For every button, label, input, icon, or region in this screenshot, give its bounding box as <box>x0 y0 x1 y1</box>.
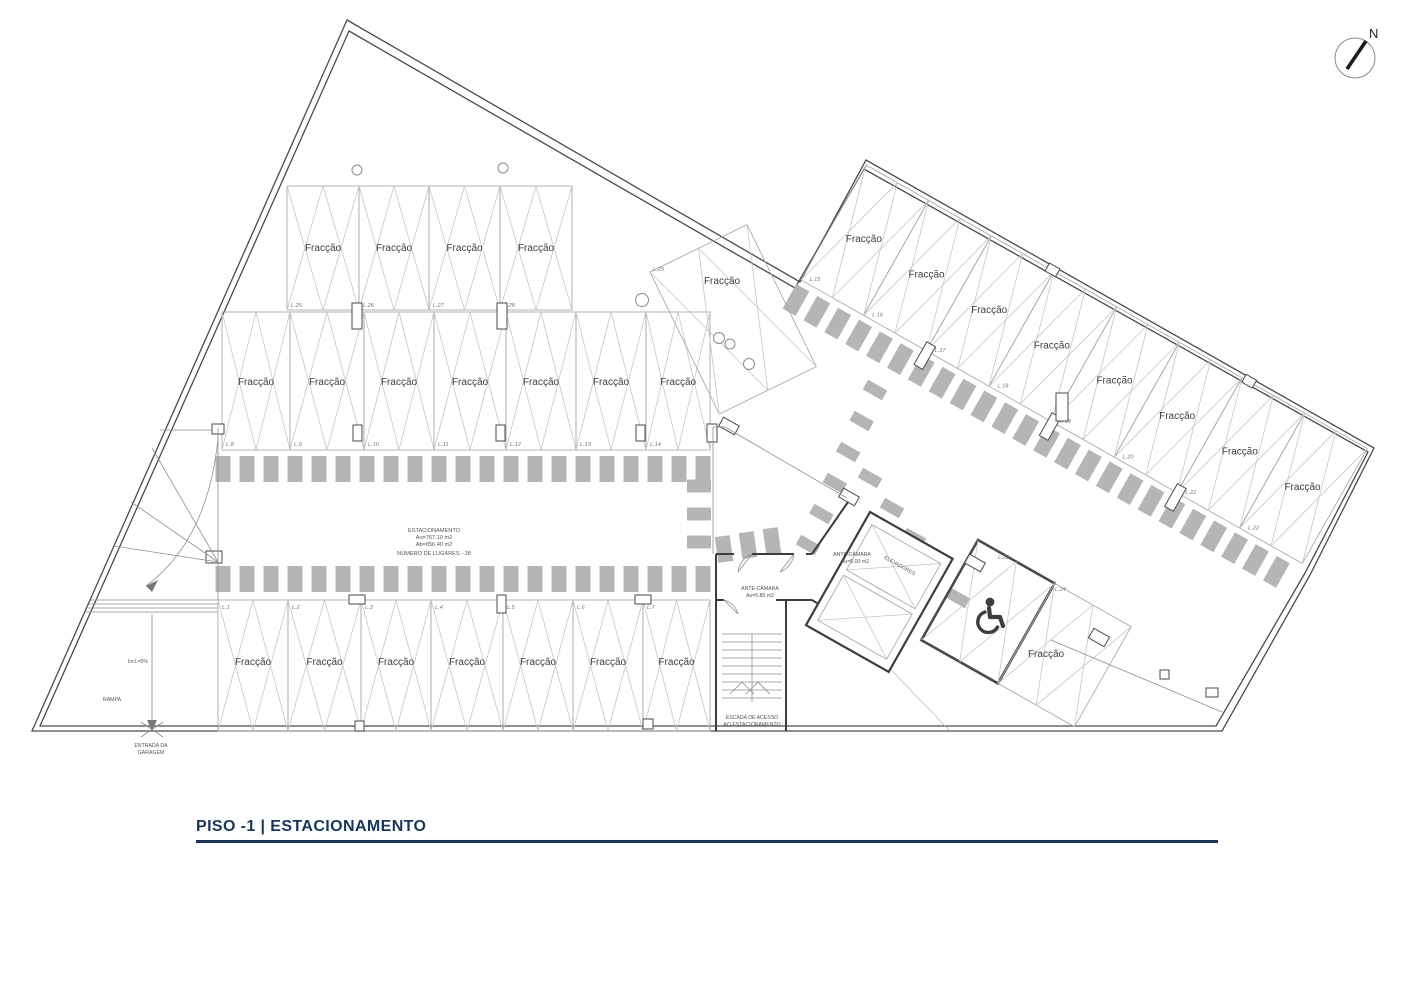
antecamara2-name: ANTE-CÂMARA <box>741 585 779 592</box>
stall-type-label: Fracção <box>520 657 557 668</box>
stall-type-label: Fracção <box>593 377 630 388</box>
column <box>1206 688 1218 697</box>
stall-id-label: L.27 <box>433 303 445 309</box>
hatch-dash <box>687 508 711 521</box>
door-leaf-3 <box>724 600 738 614</box>
stall-type-label: Fracção <box>518 243 555 254</box>
hatch-dash <box>1054 438 1081 470</box>
stall-id-label: L.18 <box>997 384 1009 390</box>
stall-id-label: L.12 <box>510 442 522 448</box>
stall-id-label: L.1 <box>222 605 230 611</box>
stall-id-label: L.16 <box>872 313 884 319</box>
hatch-dash <box>1200 520 1227 552</box>
hatch-dash <box>849 411 874 431</box>
stairs-label-1: ESCADA DE ACESSO <box>726 715 778 721</box>
stairs-label-2: AO ESTACIONAMENTO <box>723 722 780 728</box>
stall-type-label: Fracção <box>523 377 560 388</box>
hatch-dash <box>836 442 861 462</box>
stall-type-label: Fracção <box>309 377 346 388</box>
hatch-dash <box>950 379 977 411</box>
hatch-dash <box>971 390 998 422</box>
diagonal-wall-lower <box>1051 640 1222 712</box>
hatch-dash <box>384 566 399 592</box>
column <box>839 488 860 506</box>
hatch-dash <box>1138 485 1165 517</box>
vestibule-walls <box>713 427 1222 731</box>
stall-id-label: L.15 <box>809 277 821 283</box>
round-column <box>352 165 362 175</box>
hatch-dash <box>456 456 471 482</box>
column <box>1160 670 1169 679</box>
hatch-dash <box>648 456 663 482</box>
north-label: N <box>1369 26 1378 41</box>
hatch-dash <box>600 456 615 482</box>
hatch-dash <box>1242 544 1269 576</box>
hatch-dash <box>384 456 399 482</box>
hatch-dash <box>1117 473 1144 505</box>
hatch-dash <box>408 566 423 592</box>
stall-id-label: L.25 <box>291 303 303 309</box>
hatch-dash <box>624 456 639 482</box>
hatch-dash <box>858 468 883 488</box>
hatch-dash <box>552 566 567 592</box>
column <box>497 303 507 329</box>
sheet-title: PISO -1 | ESTACIONAMENTO <box>196 818 426 835</box>
stall-id-label: L.22 <box>1248 525 1260 531</box>
stall-type-label: Fracção <box>658 657 695 668</box>
hatch-dash <box>432 456 447 482</box>
stall-id-label: L.11 <box>438 442 448 448</box>
hatch-dash <box>480 566 495 592</box>
hatch-dash <box>528 456 543 482</box>
hatch-dash <box>1075 450 1102 482</box>
hatch-dash <box>866 331 893 363</box>
stall-type-label: Fracção <box>590 657 627 668</box>
antecamara1-name: ANTE-CÂMARA <box>833 551 871 558</box>
hatch-dash <box>672 566 687 592</box>
stall-id-label: L.21 <box>1185 490 1196 496</box>
stall-type-label: Fracção <box>238 377 275 388</box>
round-column <box>636 294 649 307</box>
hatch-dash <box>504 456 519 482</box>
stall-type-label: Fracção <box>305 243 342 254</box>
hatch-dash <box>696 566 711 592</box>
hatch-dash <box>648 566 663 592</box>
hatch-dash <box>929 367 956 399</box>
entrance-label-1: ENTRADA DA <box>134 743 168 749</box>
stall-id-label: L.17 <box>935 348 947 354</box>
stall-type-label: Fracção <box>306 657 343 668</box>
hatch-dash <box>1096 461 1123 493</box>
hatch-dash <box>1012 414 1039 446</box>
column <box>1088 628 1109 646</box>
stall-id-label: L.26 <box>363 303 375 309</box>
hatch-dash <box>863 380 888 400</box>
stall-type-label: Fracção <box>971 305 1008 316</box>
ramp-turn-arc <box>146 438 218 586</box>
hatch-dash <box>528 566 543 592</box>
staircase <box>722 634 782 702</box>
hatch-dash <box>288 566 303 592</box>
hatch-dash <box>288 456 303 482</box>
stall-type-label: Fracção <box>1034 340 1071 351</box>
stall-id-label: L.7 <box>647 605 656 611</box>
stats-line2: Au=767.10 m2 <box>416 535 453 541</box>
hatch-dash <box>336 566 351 592</box>
hatch-dash <box>336 456 351 482</box>
hatch-dash <box>264 566 279 592</box>
elevator-core <box>806 512 953 672</box>
column <box>352 303 362 329</box>
stall-id-label: L.4 <box>435 605 443 611</box>
stall-type-label: Fracção <box>452 377 489 388</box>
stall-id-label: L.3 <box>365 605 374 611</box>
parking-stats-block: ESTACIONAMENTO Au=767.10 m2 Ab=856.40 m2… <box>397 528 471 557</box>
outer-wall-outline <box>32 20 1374 731</box>
stair-arrow <box>730 682 754 694</box>
column <box>643 719 653 729</box>
stats-line3: Ab=856.40 m2 <box>416 542 453 548</box>
stall-id-label: L.29 <box>653 267 664 273</box>
stall-type-label: Fracção <box>1096 376 1133 387</box>
stall-labels: L.25FracçãoL.26FracçãoL.27FracçãoL.28Fra… <box>222 234 1321 668</box>
column <box>635 595 651 604</box>
hatch-dash <box>360 566 375 592</box>
hatch-dash <box>696 456 711 482</box>
round-column <box>744 359 755 370</box>
hatch-dash <box>1221 532 1248 564</box>
stall-id-label: L.13 <box>580 442 592 448</box>
hatch-dash <box>763 527 781 555</box>
stall-type-label: Fracção <box>378 657 415 668</box>
hatch-dash <box>480 456 495 482</box>
hatch-dash <box>264 456 279 482</box>
hatch-dash <box>600 566 615 592</box>
column <box>1045 263 1060 277</box>
hatch-dash <box>504 566 519 592</box>
hatch-dash <box>687 536 711 549</box>
stats-line1: ESTACIONAMENTO <box>408 528 461 534</box>
hatch-dash <box>803 296 830 328</box>
stall-id-label: L.20 <box>1123 454 1135 460</box>
door-leaf-2 <box>780 554 794 572</box>
stair-arrow <box>746 682 770 694</box>
hatch-dash <box>783 284 810 316</box>
hatch-dash <box>552 456 567 482</box>
hatch-dash <box>240 566 255 592</box>
stall-type-label: Fracção <box>1159 411 1196 422</box>
round-column <box>725 339 735 349</box>
round-column <box>498 163 508 173</box>
column <box>496 425 505 441</box>
hatch-dash <box>432 566 447 592</box>
column <box>636 425 645 441</box>
hatch-dash <box>824 308 851 340</box>
hatch-dash <box>845 320 872 352</box>
hatch-dash <box>715 535 733 563</box>
stall-type-label: Fracção <box>446 243 483 254</box>
hatch-dash <box>887 343 914 375</box>
stall-id-label: L.6 <box>577 605 586 611</box>
stall-id-label: L.10 <box>368 442 380 448</box>
hatch-dash <box>624 566 639 592</box>
stall-id-label: L.5 <box>507 605 516 611</box>
stair-side-walls <box>716 600 786 731</box>
diagonal-wall-upper <box>725 427 847 498</box>
stall-id-label: L.14 <box>650 442 661 448</box>
column <box>1056 393 1068 421</box>
hatch-dash <box>312 456 327 482</box>
hatch-dash <box>672 456 687 482</box>
hatch-dash <box>809 504 834 524</box>
hatch-dash <box>240 456 255 482</box>
hatch-dash <box>576 566 591 592</box>
ramp-joint-lines <box>86 600 218 612</box>
stall-type-label: Fracção <box>704 276 741 287</box>
hatch-dash <box>312 566 327 592</box>
title-rule <box>196 840 1218 843</box>
stall-type-label: Fracção <box>846 234 883 245</box>
column <box>353 425 362 441</box>
north-arrow: N <box>1335 26 1378 78</box>
ramp-fan-lines <box>114 448 218 562</box>
column <box>355 721 364 731</box>
hatch-dash <box>796 535 821 555</box>
parking-stall <box>998 583 1131 726</box>
hatch-dash <box>576 456 591 482</box>
stall-id-label: L.9 <box>294 442 302 448</box>
stall-type-label: Fracção <box>376 243 413 254</box>
wheelchair-icon <box>978 598 1003 633</box>
stall-type-label: Fracção <box>1222 447 1259 458</box>
stall-id-label: L.24 <box>1055 587 1066 593</box>
hatch-dash <box>360 456 375 482</box>
column <box>497 595 506 613</box>
round-column <box>714 333 725 344</box>
incline-label: Incl.=5% <box>128 659 148 665</box>
column <box>719 417 740 435</box>
stall-type-label: Fracção <box>235 657 272 668</box>
ramp-area: Incl.=5% RAMPA ENTRADA DA GARAGEM <box>86 428 218 756</box>
stall-type-label: Fracção <box>1284 482 1321 493</box>
hatch-dash <box>1179 509 1206 541</box>
column <box>349 595 365 604</box>
hatch-dash <box>880 498 905 518</box>
stall-type-label: Fracção <box>660 377 697 388</box>
floor-plan: L.25FracçãoL.26FracçãoL.27FracçãoL.28Fra… <box>0 0 1414 1000</box>
stall-type-label: Fracção <box>1028 649 1065 660</box>
stall-type-label: Fracção <box>908 269 945 280</box>
hatch-dash <box>687 480 711 493</box>
corridor-wall <box>713 427 725 554</box>
antecamara2-area: Au=5.80 m2 <box>746 593 774 599</box>
hatch-dash <box>1263 556 1290 588</box>
rampa-label: RAMPA <box>103 697 122 703</box>
antecamara1-area: Au=5.00 m2 <box>841 559 869 565</box>
hatch-dash <box>456 566 471 592</box>
hatch-dash <box>991 402 1018 434</box>
entrance-label-2: GARAGEM <box>138 750 165 756</box>
drawing-sheet: L.25FracçãoL.26FracçãoL.27FracçãoL.28Fra… <box>0 0 1414 1000</box>
stall-id-label: L.23 <box>998 555 1010 561</box>
hatch-dash <box>408 456 423 482</box>
stats-line4: NÚMERO DE LUGARES - 28 <box>397 550 471 557</box>
stall-id-label: L.2 <box>292 605 301 611</box>
column <box>1242 374 1257 388</box>
structural-columns <box>206 303 1218 731</box>
stall-id-label: L.8 <box>226 442 235 448</box>
stall-type-label: Fracção <box>381 377 418 388</box>
stall-type-label: Fracção <box>449 657 486 668</box>
round-columns <box>352 163 755 370</box>
column <box>965 554 986 572</box>
